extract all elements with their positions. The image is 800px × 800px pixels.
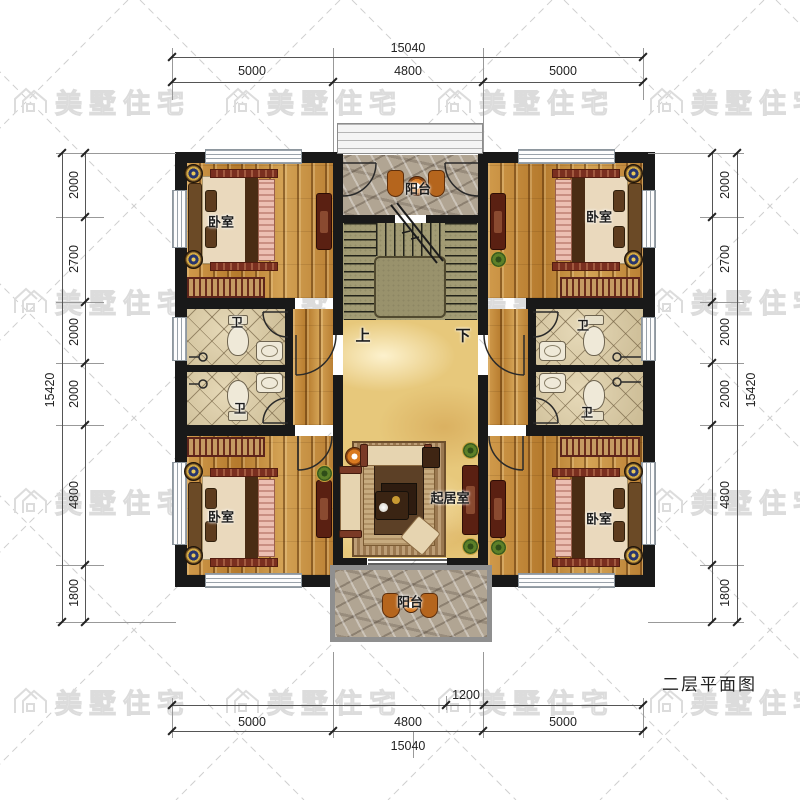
bed-runner (572, 476, 585, 560)
sink (539, 341, 566, 361)
dim-left-seg: 2000 (67, 318, 81, 346)
dim-right-seg: 2000 (718, 171, 732, 199)
dim-top-seg: 4800 (394, 64, 422, 78)
corner-medallion (184, 546, 203, 565)
bed-blanket (555, 179, 572, 261)
room-label-balcony: 阳台 (405, 179, 431, 198)
sofa-left (340, 470, 361, 534)
extension-line (56, 425, 104, 426)
dim-right-seg: 4800 (718, 481, 732, 509)
corner-medallion (184, 164, 203, 183)
extension-line (56, 622, 176, 623)
bed-runner (572, 176, 585, 264)
pillow (613, 521, 625, 542)
room-label-bedroom: 卧室 (208, 507, 234, 526)
dresser (316, 480, 332, 538)
dim-right-seg: 1800 (718, 579, 732, 607)
floor-plan-page: 美墅住宅 美墅住宅 美墅住宅 美墅住宅 美墅住宅 美墅住宅 美墅住宅 美墅住宅 … (0, 0, 800, 800)
room-label-balcony: 阳台 (397, 592, 423, 611)
dresser (490, 480, 506, 538)
plan-title: 二层平面图 (662, 670, 757, 695)
dim-bottom-balcony: 1200 (452, 688, 480, 702)
pillow (613, 488, 625, 509)
dim-top-total: 15040 (391, 41, 426, 55)
pillow (613, 226, 625, 248)
toilet (227, 326, 249, 356)
dim-bottom-seg: 5000 (549, 715, 577, 729)
bed-blanket (555, 479, 572, 557)
sink (539, 373, 566, 393)
dim-right-seg: 2000 (718, 380, 732, 408)
dim-bottom-total: 15040 (391, 739, 426, 753)
dim-left-seg: 2700 (67, 245, 81, 273)
sofa-armrest (360, 444, 368, 467)
wardrobe (560, 437, 640, 457)
room-label-bedroom: 卧室 (208, 212, 234, 231)
sofa-top (363, 445, 427, 466)
dim-right-seg: 2700 (718, 245, 732, 273)
sofa-armrest (339, 530, 362, 538)
dimension-line-bottom-segments (172, 731, 644, 732)
room-label-bathroom: 卫 (577, 317, 589, 334)
bed-fringe (552, 468, 620, 477)
corner-medallion (624, 462, 643, 481)
extension-line (56, 153, 176, 154)
dim-right-seg: 2000 (718, 318, 732, 346)
room-label-bathroom: 卫 (234, 400, 246, 417)
corner-medallion (184, 462, 203, 481)
extension-line (333, 652, 334, 738)
dimension-line-right-segments (712, 153, 713, 622)
plant (491, 252, 506, 267)
plant (463, 539, 478, 554)
tea-set (379, 503, 388, 512)
sink (256, 341, 283, 361)
corner-medallion (624, 546, 643, 565)
stair-down-label: 下 (455, 325, 470, 346)
extension-line (56, 302, 104, 303)
dim-top-seg: 5000 (238, 64, 266, 78)
room-label-bathroom: 卫 (581, 404, 593, 421)
extension-line (483, 48, 484, 152)
room-label-bedroom: 卧室 (586, 207, 612, 226)
side-table (422, 447, 440, 468)
pillow (205, 190, 217, 212)
dimension-line-top-segments (172, 82, 644, 83)
bed-fringe (210, 558, 278, 567)
dim-left-seg: 2000 (67, 171, 81, 199)
dim-bottom-seg: 5000 (238, 715, 266, 729)
sink (256, 373, 283, 393)
bed-runner (245, 176, 258, 264)
bed-fringe (210, 468, 278, 477)
dresser (490, 193, 506, 250)
extension-line (648, 622, 744, 623)
bed-fringe (210, 262, 278, 271)
corner-medallion (184, 250, 203, 269)
extension-line (648, 153, 744, 154)
corner-medallion (624, 250, 643, 269)
room-label-bathroom: 卫 (231, 314, 243, 331)
bed-blanket (258, 179, 275, 261)
wardrobe (187, 277, 265, 298)
bed-fringe (552, 262, 620, 271)
bed-fringe (210, 169, 278, 178)
extension-line (333, 48, 334, 152)
extension-line (56, 565, 104, 566)
extension-line (483, 652, 484, 738)
extension-line (56, 363, 104, 364)
room-label-bedroom: 卧室 (586, 509, 612, 528)
bed-blanket (258, 479, 275, 557)
plant (491, 540, 506, 555)
wardrobe (187, 437, 265, 457)
dimension-line-left-segments (85, 153, 86, 622)
plant (463, 443, 478, 458)
bed-runner (245, 476, 258, 560)
bed-fringe (552, 169, 620, 178)
dim-left-total: 15420 (43, 373, 57, 408)
dim-left-seg: 2000 (67, 380, 81, 408)
dim-bottom-seg: 4800 (394, 715, 422, 729)
dimension-line-bottom-balcony (172, 705, 644, 706)
bed-headboard (628, 482, 642, 554)
pillow (613, 190, 625, 212)
dresser (316, 193, 332, 250)
dimension-line-top-total (172, 57, 644, 58)
sofa-armrest (339, 466, 362, 474)
balcony-chair (387, 170, 404, 197)
stair-up-label: 上 (355, 325, 370, 346)
dimension-line-left-total (62, 153, 63, 622)
extension-line (56, 217, 104, 218)
room-label-living: 起居室 (430, 488, 469, 507)
bed-fringe (552, 558, 620, 567)
bed-headboard (188, 482, 202, 554)
dim-top-seg: 5000 (549, 64, 577, 78)
dim-left-seg: 4800 (67, 481, 81, 509)
tea-set (392, 496, 400, 504)
corner-medallion (624, 164, 643, 183)
plant (317, 466, 332, 481)
dimension-line-right-total (737, 153, 738, 622)
wardrobe (560, 277, 640, 298)
dim-left-seg: 1800 (67, 579, 81, 607)
dim-right-total: 15420 (744, 373, 758, 408)
